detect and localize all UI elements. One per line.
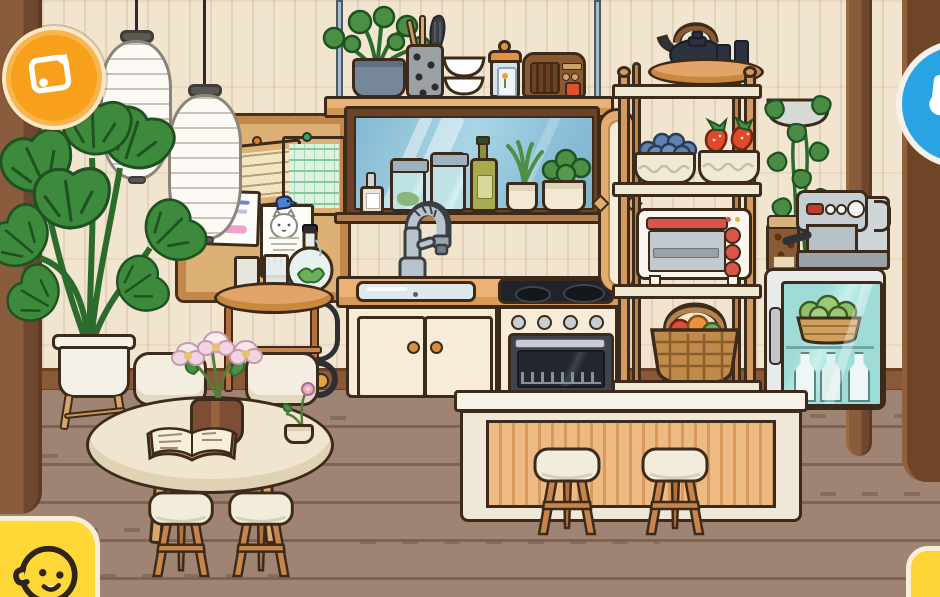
spice-canister[interactable] <box>490 60 520 98</box>
blueberry-bowl[interactable] <box>634 152 696 184</box>
dining-stool-1[interactable] <box>148 490 214 580</box>
pilea-pot <box>352 58 406 98</box>
oven-door[interactable] <box>508 333 614 397</box>
shelf-post <box>618 72 630 428</box>
strawberry-bowl[interactable] <box>698 150 760 184</box>
fridge-handle[interactable] <box>769 307 782 365</box>
plant-pot[interactable] <box>58 346 130 398</box>
lantern-cord <box>203 0 206 88</box>
sink-cabinet[interactable] <box>346 306 498 398</box>
shelf-level-1 <box>612 182 762 197</box>
kitchen-island-front <box>486 420 776 508</box>
kitchen-sink[interactable] <box>356 281 476 302</box>
open-book[interactable] <box>142 420 242 466</box>
green-pin <box>302 132 312 142</box>
faucet[interactable] <box>378 196 454 288</box>
canister-knob <box>498 40 511 53</box>
utensil-crock[interactable] <box>406 44 444 98</box>
mini-flower-pot[interactable] <box>284 424 314 444</box>
herb-pot-1[interactable] <box>506 182 538 212</box>
bar-cart-tray[interactable] <box>214 282 334 314</box>
shelf-rod <box>594 0 601 100</box>
bowl-stack[interactable] <box>442 54 486 100</box>
wall-paddle[interactable] <box>598 108 636 294</box>
shelf-level-top <box>612 84 762 99</box>
fruit-basket[interactable] <box>644 296 746 388</box>
milk-bottle <box>848 352 870 402</box>
cabinet-door-right[interactable] <box>424 316 493 398</box>
hand-icon <box>918 68 940 128</box>
mini-fridge[interactable] <box>764 268 886 410</box>
bird-pin <box>274 194 296 212</box>
mini-flower <box>280 380 324 430</box>
orange-pin <box>252 136 262 146</box>
post-knob <box>617 66 631 78</box>
characters-button[interactable] <box>0 516 100 597</box>
magnolia-flowers <box>164 330 274 408</box>
dining-stool-2[interactable] <box>228 490 294 580</box>
toaster-oven[interactable] <box>636 208 752 280</box>
kitchen-island[interactable] <box>454 390 808 412</box>
floor-dash <box>820 492 930 496</box>
oven[interactable] <box>498 306 618 398</box>
cabinet-door-left[interactable] <box>357 316 426 398</box>
chives <box>504 140 544 184</box>
window-ledge <box>334 212 610 224</box>
door-knob <box>430 341 443 354</box>
vintage-radio[interactable] <box>522 52 586 98</box>
olive-oil-bottle[interactable] <box>470 158 498 212</box>
game-scene <box>0 0 940 597</box>
bar-stool-1[interactable] <box>534 446 600 538</box>
door-knob <box>407 341 420 354</box>
monstera-plant[interactable] <box>0 98 180 358</box>
herb-pot-2[interactable] <box>542 180 586 212</box>
cooktop[interactable] <box>498 278 614 304</box>
espresso-machine[interactable] <box>796 190 888 274</box>
floor-dash <box>360 540 660 544</box>
face-icon <box>5 535 85 597</box>
post-knob <box>743 66 757 78</box>
olive-oil-cap <box>476 136 490 145</box>
camera-button[interactable] <box>2 26 106 130</box>
camera-icon <box>24 48 76 100</box>
bar-stool-2[interactable] <box>642 446 708 538</box>
corner-panel-button[interactable] <box>906 546 940 597</box>
fridge-door-glass[interactable] <box>781 281 883 407</box>
coffee-bean-jar[interactable] <box>766 222 800 274</box>
